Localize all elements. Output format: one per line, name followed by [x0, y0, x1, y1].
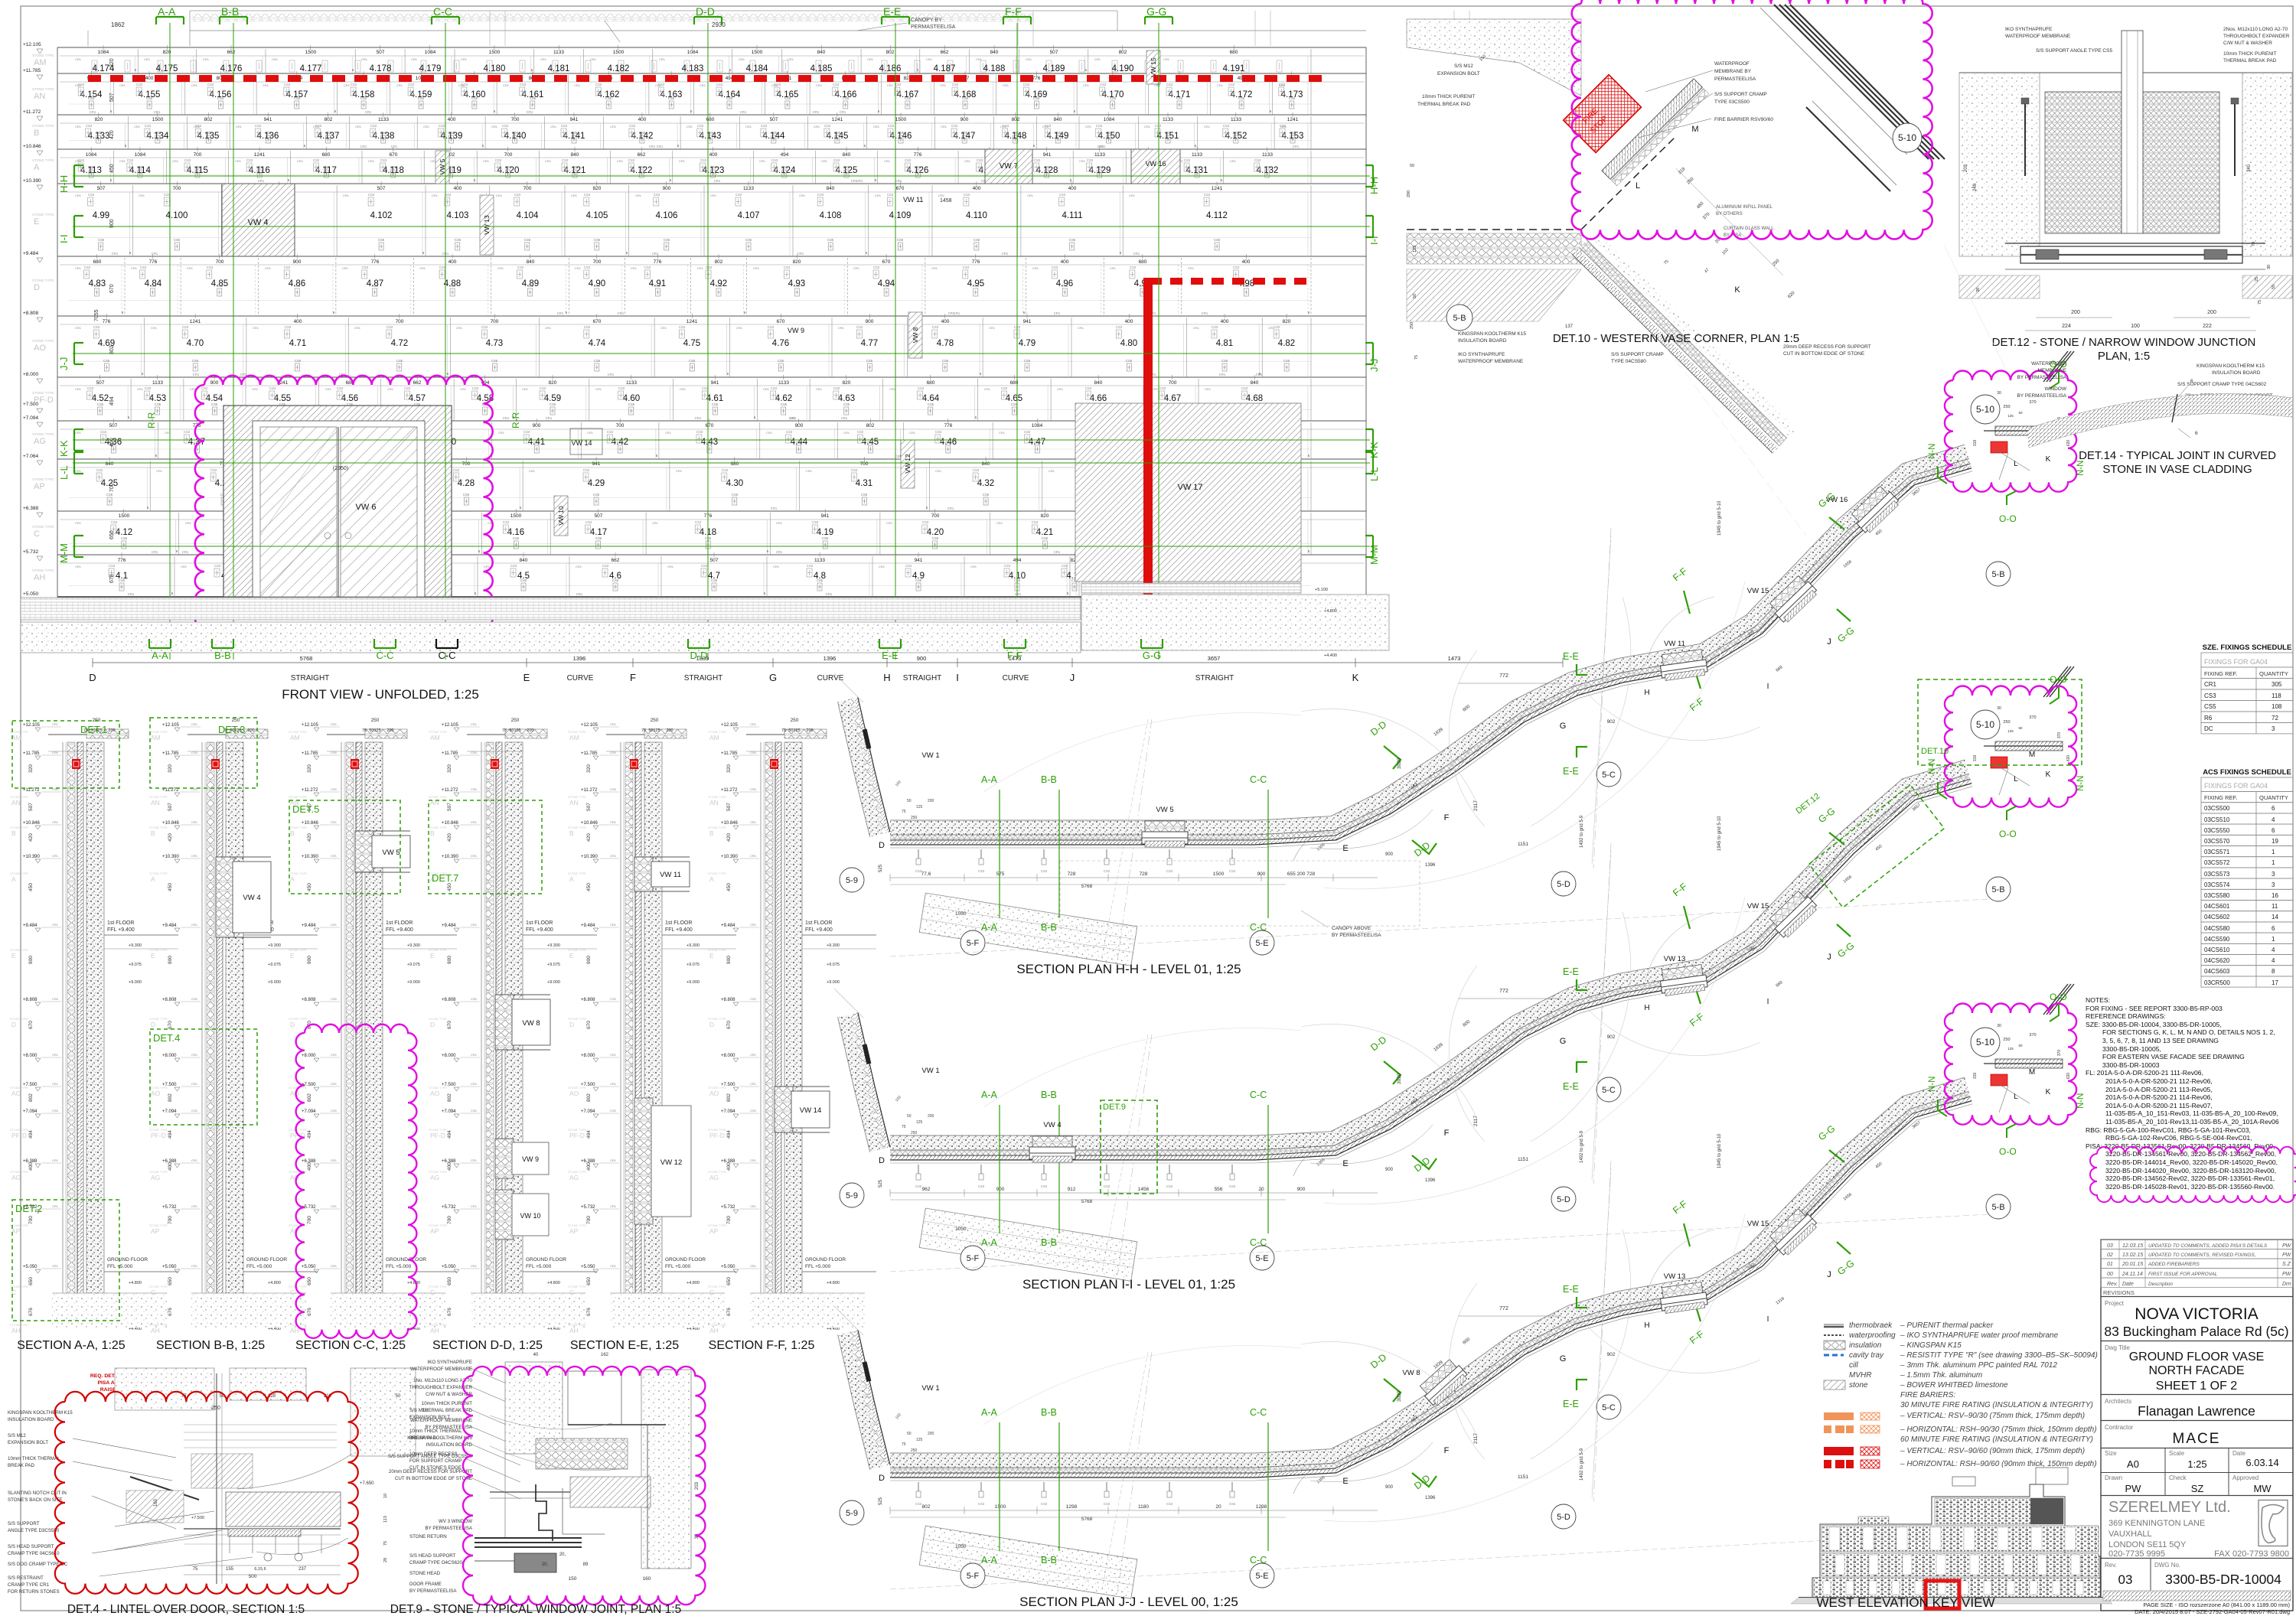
svg-text:5-F: 5-F	[967, 1254, 980, 1263]
svg-text:+9.000: +9.000	[547, 980, 560, 985]
svg-text:494: 494	[109, 396, 115, 406]
svg-text:CS3: CS3	[164, 193, 171, 197]
svg-text:30: 30	[1997, 391, 2001, 396]
svg-text:370: 370	[2029, 715, 2036, 720]
svg-text:CR1: CR1	[297, 159, 304, 163]
svg-text:CR1: CR1	[1188, 266, 1195, 270]
svg-text:– VERTICAL: RSV–90/60 (90mm t: – VERTICAL: RSV–90/60 (90mm thick, 175mm…	[1900, 1447, 2085, 1455]
svg-text:CS3: CS3	[701, 564, 708, 568]
svg-text:CR1: CR1	[396, 83, 403, 87]
svg-text:CS5: CS5	[97, 402, 104, 406]
svg-text:CR1: CR1	[1097, 145, 1104, 148]
svg-text:S/S SUPPORT CRAMP: S/S SUPPORT CRAMP	[1714, 92, 1767, 97]
svg-text:CS3: CS3	[978, 869, 985, 873]
svg-text:CR1: CR1	[355, 125, 362, 129]
svg-text:840: 840	[817, 50, 826, 55]
svg-text:CS5: CS5	[205, 131, 212, 135]
svg-text:CS3: CS3	[1059, 193, 1066, 197]
svg-text:CS3: CS3	[1023, 83, 1030, 86]
svg-text:3020: 3020	[1397, 1073, 1402, 1084]
svg-text:CS3: CS3	[109, 564, 116, 568]
svg-text:CS5: CS5	[905, 96, 912, 100]
svg-text:CS5: CS5	[710, 165, 717, 169]
svg-text:CR1: CR1	[181, 565, 188, 569]
svg-text:CS5: CS5	[491, 359, 498, 363]
svg-text:O-O: O-O	[1999, 513, 2017, 524]
svg-text:CR1: CR1	[941, 125, 947, 129]
svg-text:04CS610: 04CS610	[2204, 946, 2230, 953]
svg-text:50: 50	[907, 1432, 912, 1436]
svg-text:CS3: CS3	[100, 430, 107, 434]
svg-text:CS5: CS5	[1176, 96, 1183, 100]
svg-text:CR1: CR1	[745, 125, 752, 129]
svg-text:I: I	[1767, 998, 1769, 1006]
svg-text:CR1: CR1	[151, 326, 158, 330]
svg-text:FIRST ISSUE FOR APPROVAL: FIRST ISSUE FOR APPROVAL	[2148, 1272, 2218, 1277]
svg-text:507: 507	[710, 558, 719, 563]
svg-text:E-E: E-E	[1563, 766, 1579, 777]
svg-text:11: 11	[2272, 903, 2278, 910]
svg-text:200: 200	[806, 728, 813, 733]
svg-text:CS3: CS3	[716, 83, 723, 86]
svg-text:CS3: CS3	[922, 520, 929, 524]
svg-text:75: 75	[902, 810, 906, 814]
svg-text:5-9: 5-9	[846, 1509, 858, 1518]
svg-text:A-A: A-A	[152, 650, 168, 661]
svg-text:962: 962	[922, 1187, 931, 1192]
svg-text:CR1: CR1	[1204, 125, 1211, 129]
svg-text:5-F: 5-F	[967, 1572, 980, 1581]
svg-text:Architects: Architects	[2105, 1398, 2131, 1405]
svg-text:CS3: CS3	[595, 83, 602, 86]
svg-text:CR1: CR1	[814, 125, 820, 129]
svg-text:CS5: CS5	[1238, 96, 1245, 100]
svg-text:1241: 1241	[254, 152, 266, 158]
svg-text:8: 8	[2272, 968, 2275, 975]
svg-text:CS3: CS3	[523, 430, 530, 434]
svg-text:04CS603: 04CS603	[2204, 968, 2230, 975]
svg-text:+5.100: +5.100	[1315, 588, 1328, 592]
svg-text:840: 840	[990, 50, 999, 55]
svg-text:CS3: CS3	[1212, 325, 1218, 329]
svg-text:494: 494	[586, 1130, 592, 1139]
svg-text:FFL +9.400: FFL +9.400	[805, 927, 833, 933]
svg-text:900: 900	[1385, 1485, 1394, 1490]
svg-text:4: 4	[2272, 957, 2275, 964]
svg-text:CS5: CS5	[1264, 165, 1271, 169]
svg-text:CR1: CR1	[331, 722, 338, 726]
svg-text:4.31: 4.31	[856, 479, 872, 488]
svg-text:CR1: CR1	[635, 194, 642, 197]
svg-text:VW 13: VW 13	[1664, 1272, 1686, 1281]
svg-text:AG: AG	[709, 1174, 719, 1181]
svg-text:FFL +5.000: FFL +5.000	[386, 1264, 412, 1269]
svg-text:CS3: CS3	[1087, 158, 1094, 162]
svg-text:3300-B5-DR-10005,: 3300-B5-DR-10005,	[2102, 1045, 2161, 1053]
svg-text:CS3: CS3	[784, 266, 791, 269]
svg-text:PF-D: PF-D	[151, 1132, 166, 1139]
svg-text:RBG: RBG-5-GA-100-RevC01, RBG: RBG: RBG-5-GA-100-RevC01, RBG-5-GA-101-R…	[2086, 1126, 2251, 1134]
svg-text:450: 450	[726, 883, 732, 891]
svg-text:CR1: CR1	[649, 145, 656, 148]
svg-text:CS5: CS5	[217, 96, 224, 100]
svg-text:CS5: CS5	[571, 131, 578, 135]
svg-text:G: G	[1560, 1037, 1567, 1046]
svg-text:CS3: CS3	[951, 124, 958, 128]
svg-text:4.178: 4.178	[370, 64, 392, 73]
svg-text:CR1: CR1	[550, 125, 557, 129]
svg-text:5-C: 5-C	[1602, 771, 1616, 780]
svg-text:CR1: CR1	[497, 266, 504, 270]
svg-text:+7.094: +7.094	[442, 1109, 456, 1114]
svg-text:900: 900	[726, 956, 732, 964]
svg-text:+10.846: +10.846	[581, 821, 598, 826]
svg-text:L: L	[1636, 181, 1640, 191]
svg-text:4.76: 4.76	[772, 339, 789, 348]
svg-text:+4.400: +4.400	[1324, 653, 1337, 658]
svg-text:370: 370	[2057, 1050, 2062, 1057]
svg-text:4.111: 4.111	[1062, 211, 1082, 220]
svg-text:CR1: CR1	[52, 923, 59, 927]
svg-text:03CS500: 03CS500	[2204, 805, 2230, 812]
svg-text:CS5: CS5	[961, 131, 968, 135]
svg-text:R-R: R-R	[510, 412, 521, 428]
svg-text:820: 820	[1283, 319, 1291, 324]
svg-text:2117: 2117	[1473, 1433, 1479, 1444]
svg-text:CR1: CR1	[236, 125, 243, 129]
svg-text:+4.800: +4.800	[687, 1281, 700, 1285]
svg-text:CS3: CS3	[84, 266, 91, 269]
svg-text:CR1: CR1	[1094, 57, 1101, 61]
svg-text:5-F: 5-F	[967, 939, 980, 948]
svg-text:1050: 1050	[955, 1544, 967, 1549]
svg-text:CR1: CR1	[331, 923, 338, 927]
svg-text:CR1: CR1	[816, 387, 823, 391]
svg-text:507: 507	[109, 423, 118, 428]
svg-text:4.70: 4.70	[187, 339, 204, 348]
svg-text:+8.000: +8.000	[581, 1054, 595, 1058]
svg-text:670: 670	[168, 1021, 173, 1029]
svg-text:CR1: CR1	[52, 820, 59, 824]
svg-text:thermobraek: thermobraek	[1849, 1321, 1893, 1330]
svg-text:155: 155	[226, 1567, 234, 1572]
svg-text:CS5: CS5	[390, 165, 397, 169]
svg-text:CS5: CS5	[593, 493, 600, 497]
svg-text:STONE TYPE: STONE TYPE	[32, 87, 54, 91]
svg-text:125: 125	[2007, 414, 2014, 418]
svg-text:CS5: CS5	[778, 359, 784, 363]
svg-text:CR1: CR1	[576, 565, 582, 569]
svg-text:DET.1: DET.1	[80, 724, 107, 735]
svg-text:CS3: CS3	[978, 1502, 985, 1506]
svg-text:TYPE 03CS500: TYPE 03CS500	[1714, 99, 1750, 105]
svg-text:BY PERMASTEELISA: BY PERMASTEELISA	[2017, 393, 2066, 399]
svg-text:A-A: A-A	[158, 5, 176, 18]
svg-text:CR1: CR1	[676, 469, 683, 473]
svg-text:CS5: CS5	[155, 131, 161, 135]
svg-text:J: J	[1070, 672, 1075, 683]
svg-text:CR1: CR1	[590, 57, 597, 61]
svg-text:VW 4: VW 4	[248, 218, 269, 227]
svg-text:+12.105: +12.105	[581, 723, 598, 728]
svg-text:03: 03	[2107, 1243, 2113, 1249]
svg-text:525: 525	[879, 864, 883, 872]
svg-text:CR1: CR1	[1078, 326, 1084, 330]
svg-text:A: A	[151, 875, 155, 883]
svg-text:CS3: CS3	[520, 83, 527, 86]
svg-text:700: 700	[931, 513, 940, 519]
svg-text:DET.4: DET.4	[153, 1032, 180, 1044]
svg-text:CR1: CR1	[999, 431, 1006, 435]
svg-text:CS3: CS3	[140, 266, 147, 269]
svg-text:CR1: CR1	[587, 431, 594, 435]
svg-text:AG: AG	[569, 1174, 579, 1181]
svg-text:680: 680	[322, 152, 331, 158]
svg-text:CRAMP TYPE 04CS610: CRAMP TYPE 04CS610	[8, 1551, 60, 1556]
svg-text:CS3: CS3	[607, 430, 614, 434]
svg-text:DET.10: DET.10	[1921, 747, 1949, 756]
svg-text:AG: AG	[430, 1174, 439, 1181]
svg-text:1500: 1500	[1213, 872, 1225, 877]
svg-text:CR1: CR1	[1049, 469, 1055, 473]
svg-text:KINGSPAN KOOLTHERM K15: KINGSPAN KOOLTHERM K15	[407, 1435, 472, 1441]
svg-text:CS5: CS5	[932, 536, 939, 540]
svg-text:VW 11: VW 11	[660, 871, 681, 879]
svg-text:SECTION E-E, 1:25: SECTION E-E, 1:25	[570, 1339, 679, 1352]
svg-text:+7.094: +7.094	[581, 1109, 595, 1114]
svg-text:Drawn: Drawn	[2105, 1474, 2122, 1481]
svg-text:cavity tray: cavity tray	[1849, 1351, 1884, 1360]
svg-text:CR1: CR1	[187, 266, 194, 270]
svg-text:4.99: 4.99	[93, 211, 109, 220]
svg-text:CR1: CR1	[771, 507, 778, 510]
svg-text:AH: AH	[290, 1327, 299, 1334]
svg-text:CR1: CR1	[456, 326, 463, 330]
svg-text:CS3: CS3	[472, 386, 479, 390]
svg-text:CS3: CS3	[78, 158, 85, 162]
svg-text:S/S M12: S/S M12	[1454, 64, 1473, 69]
svg-text:676: 676	[307, 1308, 312, 1316]
svg-text:CS5: CS5	[1062, 284, 1068, 288]
svg-text:1133: 1133	[1231, 117, 1241, 122]
svg-text:802: 802	[28, 1093, 34, 1102]
svg-text:CS5: CS5	[191, 1109, 198, 1113]
svg-text:840: 840	[1251, 380, 1259, 386]
svg-text:802: 802	[307, 1093, 312, 1102]
svg-text:CR1: CR1	[776, 550, 783, 554]
svg-text:160: 160	[643, 1576, 651, 1582]
svg-text:CS3: CS3	[918, 386, 925, 390]
svg-text:125: 125	[916, 805, 923, 810]
svg-text:1151: 1151	[1518, 842, 1528, 847]
svg-text:CS3: CS3	[833, 158, 840, 162]
svg-text:BY PERMASTEELISA: BY PERMASTEELISA	[2017, 375, 2066, 380]
svg-text:4.103: 4.103	[447, 211, 469, 220]
svg-text:B: B	[151, 829, 155, 837]
svg-text:650: 650	[726, 1277, 732, 1285]
svg-text:SHEET 1 OF 2: SHEET 1 OF 2	[2156, 1380, 2238, 1393]
svg-text:STONE TYPE: STONE TYPE	[32, 158, 54, 162]
svg-text:CR1: CR1	[610, 923, 617, 927]
svg-text:1945 to grid 5-10: 1945 to grid 5-10	[1717, 816, 1722, 851]
svg-text:CR1: CR1	[191, 1264, 198, 1268]
svg-text:900: 900	[586, 956, 592, 964]
svg-text:3220-B5-DR-144020_Rev00, 3220-: 3220-B5-DR-144020_Rev00, 3220-B5-DR-1631…	[2105, 1167, 2276, 1175]
svg-text:CR1: CR1	[773, 565, 780, 569]
svg-text:J: J	[1827, 637, 1831, 647]
svg-text:GROUND FLOOR: GROUND FLOOR	[526, 1257, 566, 1262]
svg-text:+8.000: +8.000	[23, 372, 38, 377]
svg-text:CS3: CS3	[111, 520, 118, 524]
svg-text:CS3: CS3	[915, 1184, 922, 1188]
svg-text:CR1: CR1	[1085, 125, 1092, 129]
svg-text:5-D: 5-D	[1557, 1513, 1570, 1522]
svg-text:I: I	[1767, 1315, 1769, 1324]
svg-text:D: D	[89, 672, 96, 683]
svg-text:CS5: CS5	[331, 787, 338, 791]
svg-text:NOTES:: NOTES:	[2086, 996, 2110, 1004]
svg-text:(2950): (2950)	[333, 466, 348, 471]
svg-text:CR1: CR1	[545, 326, 552, 330]
svg-text:CS5: CS5	[605, 96, 612, 100]
svg-text:A: A	[569, 875, 574, 883]
svg-text:03: 03	[2118, 1572, 2133, 1587]
svg-text:CR1: CR1	[112, 252, 119, 256]
svg-text:REVISIONS: REVISIONS	[2103, 1289, 2135, 1296]
svg-text:CS3: CS3	[1223, 124, 1230, 128]
svg-text:AO: AO	[709, 1090, 719, 1097]
svg-text:G: G	[769, 672, 777, 683]
svg-text:+11.785: +11.785	[23, 751, 40, 756]
svg-text:CS3: CS3	[362, 266, 369, 269]
svg-text:650: 650	[447, 1277, 452, 1285]
svg-text:CS3: CS3	[1100, 83, 1107, 86]
svg-text:CS3: CS3	[439, 266, 446, 269]
svg-text:1241: 1241	[190, 319, 201, 324]
svg-text:CR1: CR1	[788, 57, 794, 61]
svg-text:900: 900	[795, 423, 804, 428]
svg-text:400: 400	[448, 259, 457, 265]
svg-text:4.184: 4.184	[746, 64, 768, 73]
svg-text:CS5: CS5	[781, 165, 788, 169]
svg-text:CR1: CR1	[652, 252, 659, 256]
svg-text:728: 728	[1140, 872, 1148, 877]
svg-text:+11.785: +11.785	[302, 751, 318, 756]
svg-text:1133: 1133	[378, 117, 389, 122]
svg-text:1500: 1500	[152, 117, 164, 122]
svg-text:CS5: CS5	[639, 131, 646, 135]
svg-text:+5.050: +5.050	[23, 591, 38, 597]
svg-text:+9.000: +9.000	[268, 980, 281, 985]
svg-text:CR1: CR1	[545, 159, 552, 163]
svg-text:CS3: CS3	[833, 83, 840, 86]
svg-text:F: F	[1444, 1129, 1450, 1138]
svg-text:678: 678	[109, 574, 115, 583]
svg-text:CR1: CR1	[52, 722, 59, 726]
svg-text:A: A	[11, 875, 16, 883]
svg-text:VAUXHALL: VAUXHALL	[2108, 1530, 2152, 1539]
svg-text:CS5: CS5	[610, 997, 617, 1001]
svg-text:ANGLE TYPE D3CS550: ANGLE TYPE D3CS550	[8, 1528, 60, 1533]
svg-text:670: 670	[447, 1021, 452, 1029]
svg-text:CR1: CR1	[75, 57, 82, 61]
svg-text:02: 02	[2107, 1253, 2113, 1258]
svg-text:CS3: CS3	[812, 520, 819, 524]
svg-text:FOR EASTERN VASE FACADE SEE DR: FOR EASTERN VASE FACADE SEE DRAWING	[2102, 1053, 2245, 1060]
svg-text:CURVE: CURVE	[1003, 674, 1029, 683]
svg-text:4.29: 4.29	[588, 479, 605, 488]
svg-text:QUANTITY: QUANTITY	[2259, 794, 2288, 801]
svg-text:CS5: CS5	[781, 402, 788, 406]
svg-text:75: 75	[383, 1541, 388, 1546]
svg-text:VW 15: VW 15	[1747, 1220, 1769, 1228]
svg-text:CR1: CR1	[851, 179, 858, 183]
svg-text:1241: 1241	[1212, 186, 1223, 191]
svg-text:820: 820	[793, 259, 801, 265]
svg-text:941: 941	[1043, 152, 1052, 158]
svg-text:CR1: CR1	[191, 722, 198, 726]
svg-text:CS5: CS5	[750, 1109, 757, 1113]
svg-text:CR1: CR1	[996, 521, 1003, 525]
svg-text:CR1: CR1	[1152, 387, 1159, 391]
svg-text:M-M: M-M	[1368, 545, 1380, 565]
svg-text:CS5: CS5	[513, 536, 520, 540]
svg-text:CR1: CR1	[841, 416, 848, 420]
svg-text:670: 670	[586, 1021, 592, 1029]
svg-text:820: 820	[95, 117, 103, 122]
svg-text:556: 556	[1215, 1187, 1223, 1192]
svg-text:CR1: CR1	[879, 565, 885, 569]
svg-text:20,: 20,	[559, 1552, 566, 1557]
svg-text:CS3: CS3	[1024, 430, 1031, 434]
svg-text:CS5: CS5	[974, 238, 980, 242]
svg-text:A-A: A-A	[981, 922, 998, 933]
svg-text:CS3: CS3	[978, 1184, 985, 1188]
svg-text:CR1: CR1	[610, 125, 617, 129]
svg-text:620: 620	[2066, 1073, 2071, 1080]
svg-text:4.176: 4.176	[220, 64, 243, 73]
svg-text:CR1: CR1	[191, 1158, 198, 1162]
svg-text:CR1: CR1	[503, 83, 510, 87]
svg-text:CR1: CR1	[360, 145, 367, 148]
svg-text:1500: 1500	[119, 513, 130, 519]
svg-text:+5.732: +5.732	[23, 549, 38, 555]
svg-text:VW 7: VW 7	[1000, 162, 1019, 171]
svg-text:420: 420	[28, 833, 34, 842]
svg-text:BY PERMASTEELISA: BY PERMASTEELISA	[426, 1526, 473, 1531]
svg-text:M-M: M-M	[58, 543, 70, 563]
svg-text:CR1: CR1	[1163, 57, 1170, 61]
svg-text:670: 670	[896, 186, 905, 191]
svg-text:CR1: CR1	[1032, 266, 1039, 270]
svg-text:100: 100	[2131, 324, 2140, 329]
svg-text:50: 50	[907, 799, 912, 803]
svg-text:VW 5: VW 5	[1156, 806, 1173, 814]
svg-text:CR1: CR1	[331, 820, 338, 824]
svg-text:CS5: CS5	[323, 165, 330, 169]
svg-text:+8.000: +8.000	[23, 1054, 38, 1058]
svg-text:+12.105: +12.105	[162, 723, 180, 728]
svg-text:802: 802	[109, 345, 115, 354]
svg-text:CR1: CR1	[821, 159, 828, 163]
svg-text:941: 941	[821, 513, 830, 519]
svg-text:CR1: CR1	[52, 1082, 59, 1086]
svg-text:+9.484: +9.484	[581, 924, 595, 928]
svg-text:CS3: CS3	[786, 430, 793, 434]
svg-text:340: 340	[2247, 164, 2252, 172]
svg-text:CR1: CR1	[144, 57, 151, 61]
svg-text:620: 620	[2066, 755, 2071, 762]
